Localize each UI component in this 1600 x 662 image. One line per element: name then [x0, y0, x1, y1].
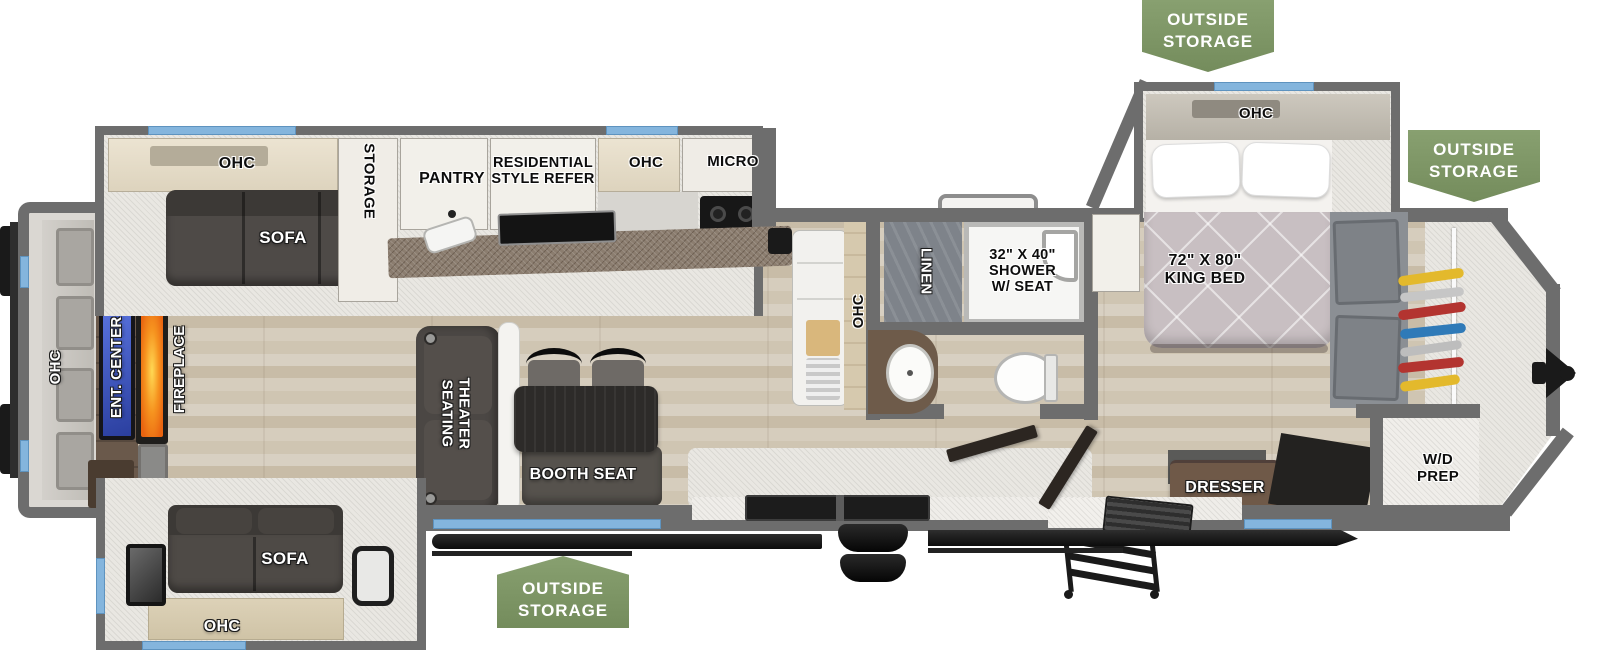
step-wheel [1150, 590, 1159, 599]
dishwasher [498, 210, 617, 246]
outside-storage-badge-bottom: OUTSIDE STORAGE [497, 556, 629, 628]
sofa-ohc-label: OHC [167, 155, 307, 173]
micro-label: MICRO [663, 154, 803, 171]
toilet-tank [1044, 354, 1058, 402]
island-cutting-board [806, 320, 840, 356]
island-drawer-line [797, 298, 843, 300]
island-sink-grate [806, 358, 840, 400]
bedroom-ohc-label: OHC [1186, 106, 1326, 123]
outside-storage-badge-front: OUTSIDE STORAGE [1408, 130, 1540, 202]
step-wheel [1064, 590, 1073, 599]
pillow [1151, 141, 1241, 198]
bottom-window-booth [433, 519, 661, 529]
king-bed-label-line1: 72" X 80" [1125, 252, 1285, 270]
badge-line2: STORAGE [1408, 161, 1540, 183]
badge-line2: STORAGE [1142, 31, 1274, 53]
wardrobe-door [1333, 315, 1402, 401]
sofa-bottom-label: SOFA [215, 550, 355, 569]
burner [710, 206, 726, 222]
hitch-coupler [1560, 366, 1575, 381]
wardrobe-door [1333, 219, 1402, 305]
sofa-back-pillow [258, 508, 334, 534]
bath-wall-bottom-right [1040, 404, 1098, 419]
shower-label-line3: W/ SEAT [960, 280, 1085, 296]
bottom-window-bedroom [1244, 519, 1332, 529]
bath-sink-drain [907, 370, 913, 376]
badge-line2: STORAGE [497, 600, 629, 622]
wd-prep-label-line1: W/D [1378, 452, 1498, 469]
bed-foot-shadow [1150, 344, 1328, 353]
slide-tv-window [126, 544, 166, 606]
sofa-slide-window-bottom [142, 641, 246, 650]
refer-label-line2: STYLE REFER [478, 172, 608, 188]
slideout-window [148, 126, 296, 135]
sofa-ohc-bottom-label: OHC [152, 618, 292, 636]
booth-seat-label: BOOTH SEAT [513, 466, 653, 484]
badge-line1: OUTSIDE [1142, 9, 1274, 31]
storage-label: STORAGE [360, 101, 377, 261]
badge-line1: OUTSIDE [497, 578, 629, 600]
faucet [448, 210, 456, 218]
king-bed-label-line2: KING BED [1125, 270, 1285, 288]
top-wall-mid [755, 208, 1145, 222]
awning-rail-left [432, 534, 822, 549]
shower-label-line2: SHOWER [960, 264, 1085, 280]
bedroom-slide-window [1214, 82, 1314, 91]
storage-hatch-divider [836, 495, 844, 521]
sofa-slide-window-left [96, 558, 105, 614]
fireplace-flame [141, 305, 163, 437]
wd-prep-label: W/D PREP [1378, 452, 1498, 485]
rear-cabinet-door [56, 228, 94, 286]
counter-end-trash [768, 228, 792, 254]
theater-cupholder [424, 332, 437, 345]
rear-ohc-label: OHC [48, 307, 65, 427]
slide-window-right [352, 546, 394, 606]
hitch-jack [1532, 362, 1546, 384]
theater-label-line2: SEATING [439, 354, 456, 474]
awning-rail-left-lower [432, 551, 632, 556]
rear-window-bottom [20, 440, 29, 472]
booth-table [514, 386, 658, 452]
shower-label-line1: 32" X 40" [960, 248, 1085, 264]
theater-seating-label: THEATER SEATING [439, 354, 472, 474]
linen-label: LINEN [917, 211, 934, 331]
awning-rail-right-lower [928, 548, 1123, 553]
step-rail-left [1063, 538, 1074, 592]
king-bed-label: 72" X 80" KING BED [1125, 252, 1285, 287]
pillow [1241, 141, 1331, 198]
folded-step-stack [838, 524, 908, 552]
island-ohc-label: OHC [851, 251, 868, 371]
wd-prep-label-line2: PREP [1378, 469, 1498, 486]
theater-label-line1: THEATER [455, 354, 472, 474]
bedside-cabinet [1092, 214, 1140, 292]
awning-rail-right [928, 530, 1358, 546]
island-drawer-line [797, 262, 843, 264]
folded-step-stack [840, 554, 906, 582]
outside-storage-badge-top: OUTSIDE STORAGE [1142, 0, 1274, 72]
badge-line1: OUTSIDE [1408, 139, 1540, 161]
rear-window-top [20, 256, 29, 288]
slideout-window [606, 126, 678, 135]
rv-floorplan: OHC ENT. CENTER FIREPLACE OHC [0, 0, 1600, 662]
sofa-back-pillow [176, 508, 252, 534]
shower-label: 32" X 40" SHOWER W/ SEAT [960, 248, 1085, 296]
sofa-top-label: SOFA [213, 229, 353, 248]
